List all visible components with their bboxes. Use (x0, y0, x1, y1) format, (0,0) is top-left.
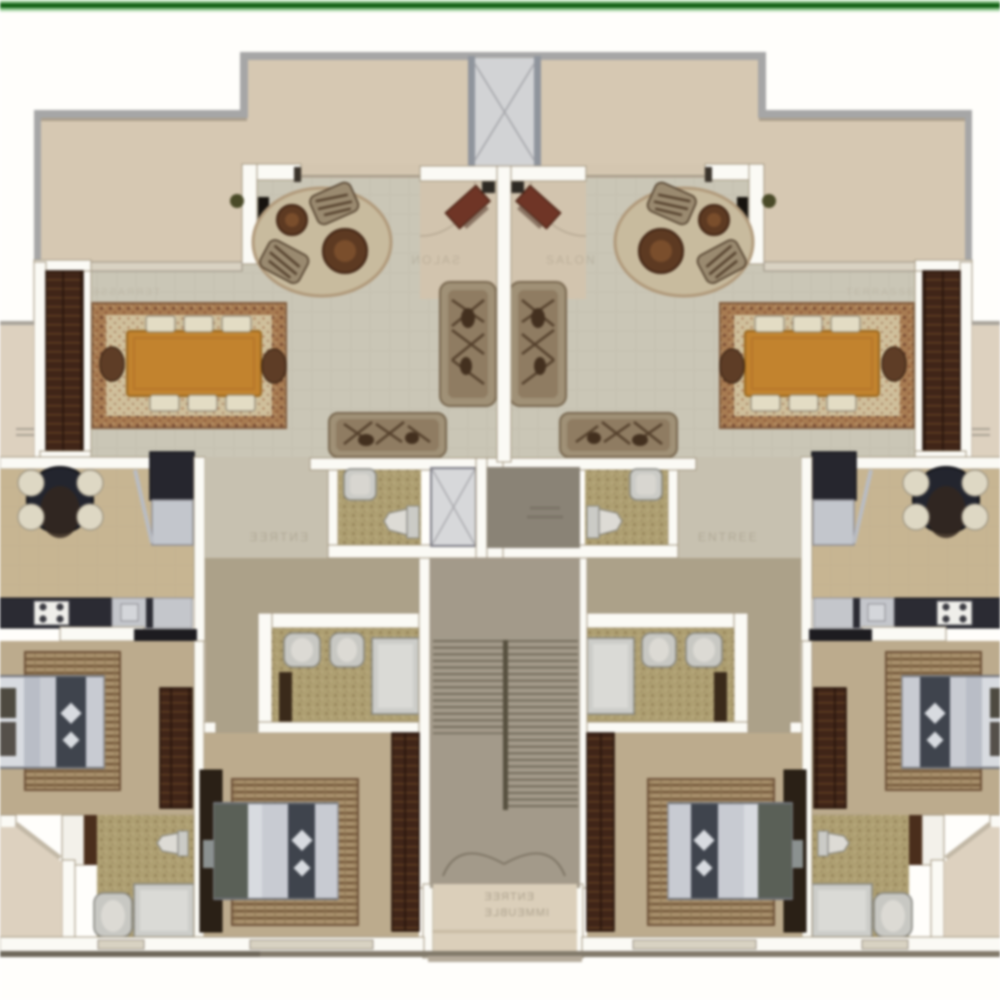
svg-text:ENTREE: ENTREE (247, 530, 308, 544)
svg-text:ENTREE: ENTREE (483, 891, 534, 903)
svg-text:TERRASSE: TERRASSE (90, 287, 160, 298)
svg-text:SALON: SALON (409, 253, 460, 267)
svg-text:IMMEUBLE: IMMEUBLE (484, 907, 549, 919)
